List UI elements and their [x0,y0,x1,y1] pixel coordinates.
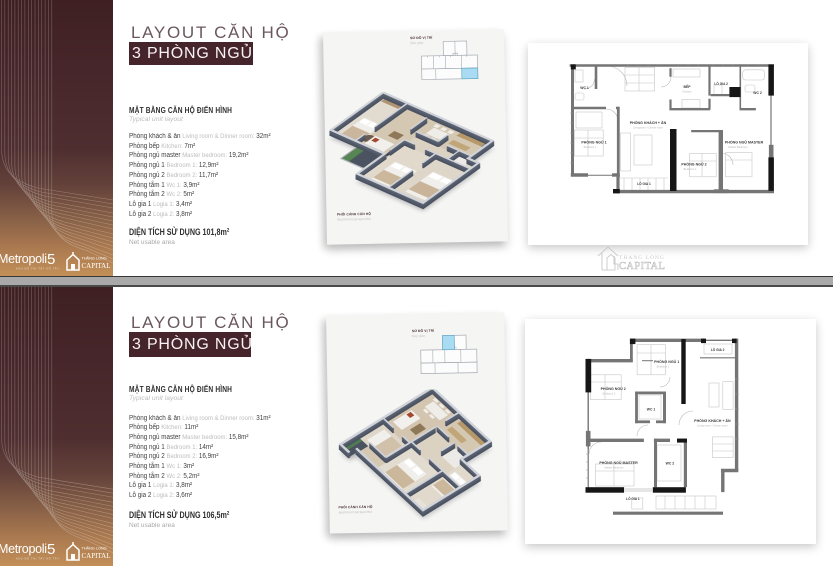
svg-text:LÔ GIA 1: LÔ GIA 1 [637,181,651,186]
svg-text:BẾP: BẾP [684,84,692,89]
svg-text:LÔ GIA 2: LÔ GIA 2 [714,81,728,86]
svg-text:PHÒNG NGỦ MASTER: PHÒNG NGỦ MASTER [599,460,638,465]
svg-text:WC 1: WC 1 [580,86,589,90]
svg-text:LÔ GIA 1: LÔ GIA 1 [626,496,640,501]
svg-text:Master Bedroom: Master Bedroom [604,466,623,470]
svg-text:CAPITAL: CAPITAL [619,261,665,272]
svg-text:WC 2: WC 2 [666,462,675,466]
svg-text:PHÒNG NGỦ 2: PHÒNG NGỦ 2 [601,386,626,391]
svg-text:PHÒNG NGỦ 1: PHÒNG NGỦ 1 [654,359,679,364]
svg-text:PHÒNG KHÁCH + ĂN: PHÒNG KHÁCH + ĂN [630,120,667,125]
svg-text:PHÒNG NGỦ 2: PHÒNG NGỦ 2 [681,162,706,167]
svg-text:Bedroom 1: Bedroom 1 [657,365,670,369]
svg-text:LÔ GIA 2: LÔ GIA 2 [711,347,725,352]
svg-text:PHÒNG NGỦ MASTER: PHÒNG NGỦ MASTER [725,140,764,145]
svg-text:Metropoli: Metropoli [0,252,47,266]
svg-text:THĂNG LONG: THĂNG LONG [82,257,107,261]
svg-text:5: 5 [47,251,55,268]
svg-text:Master Bedroom: Master Bedroom [728,145,747,149]
svg-text:Living room + Dinner room: Living room + Dinner room [697,424,728,428]
svg-text:Bedroom 1: Bedroom 1 [584,145,597,149]
svg-text:PHÒNG KHÁCH + ĂN: PHÒNG KHÁCH + ĂN [694,418,731,423]
svg-text:Bedroom 2: Bedroom 2 [603,392,616,396]
svg-text:Livingroom + Dinner room: Livingroom + Dinner room [633,126,663,130]
svg-text:5: 5 [47,541,55,558]
svg-text:PHÒNG NGỦ 1: PHÒNG NGỦ 1 [581,140,606,145]
svg-text:Kitchen: Kitchen [683,90,692,94]
svg-text:CAPITAL: CAPITAL [82,262,111,270]
svg-text:Bedroom 2: Bedroom 2 [684,167,697,171]
svg-text:WC 1: WC 1 [647,408,656,412]
svg-text:Metropoli: Metropoli [0,542,47,556]
svg-text:WC 2: WC 2 [753,91,762,95]
svg-text:THĂNG LONG: THĂNG LONG [82,547,107,551]
svg-text:CAPITAL: CAPITAL [82,552,111,560]
